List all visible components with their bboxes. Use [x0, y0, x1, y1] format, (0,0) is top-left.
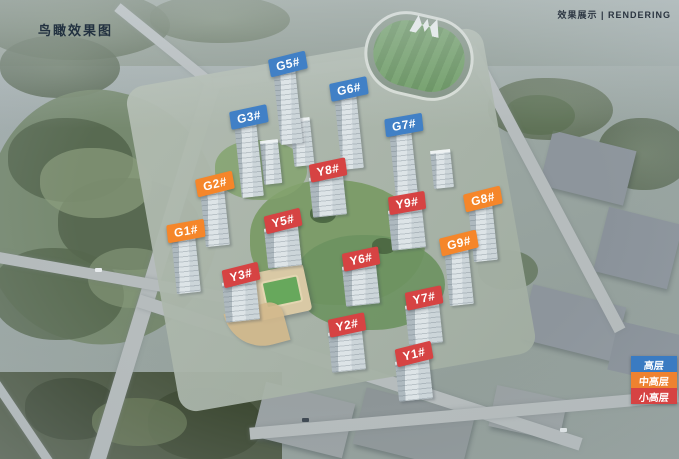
building-label-g8: G8#: [463, 185, 503, 212]
legend-label: 小高层: [638, 389, 670, 404]
building-label-y5: Y5#: [264, 208, 303, 235]
building-label-g9: G9#: [439, 229, 479, 256]
building-label-y3: Y3#: [222, 262, 261, 289]
legend-item-mid-high: 中高层: [631, 372, 677, 388]
building-label-y6: Y6#: [342, 246, 381, 272]
building-label-g1: G1#: [166, 219, 205, 244]
building-label-y8: Y8#: [309, 157, 348, 183]
rendering-caption: 效果展示 | RENDERING: [557, 8, 671, 21]
legend-label: 高层: [643, 357, 665, 372]
building-label-g6: G6#: [329, 76, 369, 102]
building-label-g2: G2#: [195, 170, 235, 197]
legend-item-high: 高层: [631, 356, 677, 372]
building-label-y2: Y2#: [328, 312, 367, 338]
building-labels-layer: G5#G6#G3#G7#G2#G8#G1#G9#Y8#Y9#Y5#Y6#Y3#Y…: [0, 0, 679, 459]
legend-label: 中高层: [638, 373, 670, 388]
legend: 高层 中高层 小高层: [631, 356, 677, 404]
building-label-y1: Y1#: [395, 341, 434, 368]
page-title: 鸟瞰效果图: [38, 20, 113, 39]
building-label-y9: Y9#: [388, 191, 426, 215]
building-label-g3: G3#: [229, 104, 269, 130]
building-label-g7: G7#: [384, 113, 423, 138]
building-label-g5: G5#: [268, 50, 308, 77]
aerial-rendering: G5#G6#G3#G7#G2#G8#G1#G9#Y8#Y9#Y5#Y6#Y3#Y…: [0, 0, 679, 459]
legend-item-small-high: 小高层: [631, 388, 677, 404]
building-label-y7: Y7#: [405, 285, 444, 311]
